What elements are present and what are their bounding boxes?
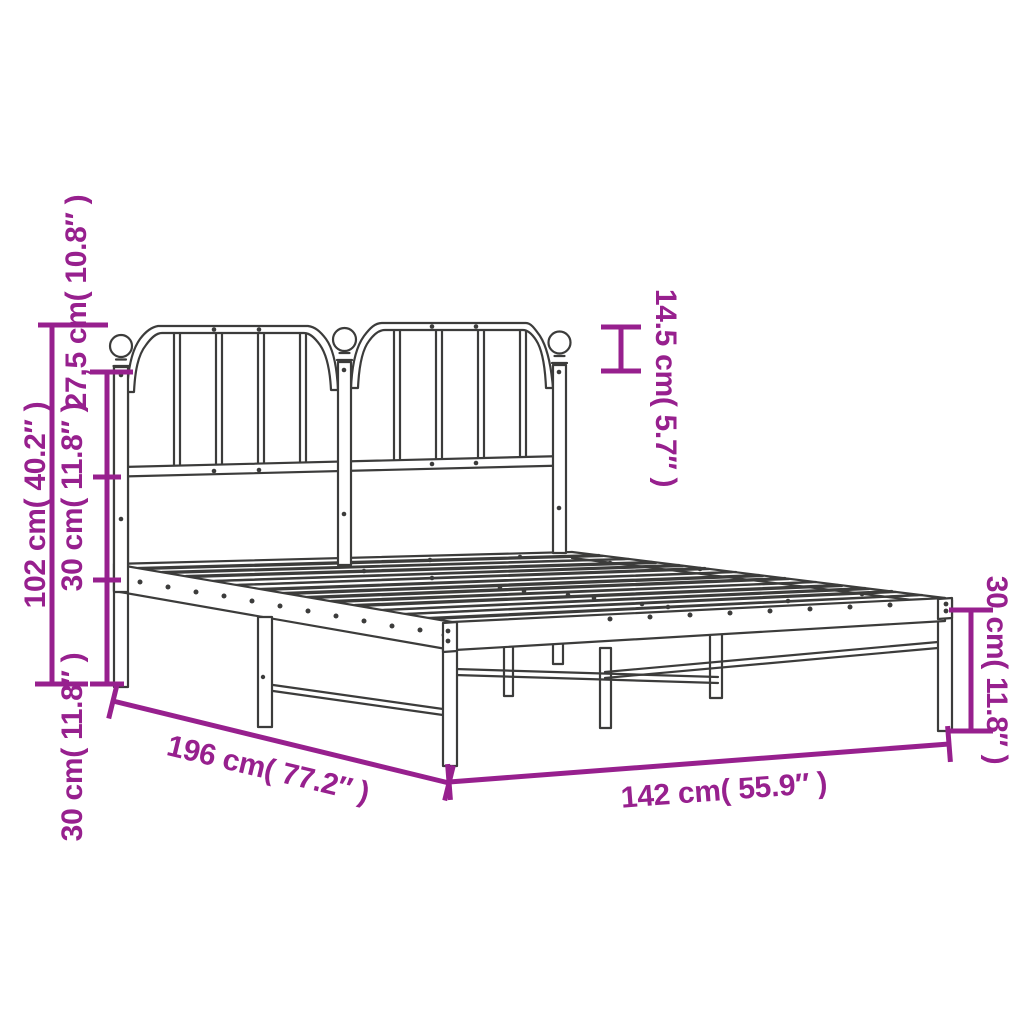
bed-frame-line-drawing (0, 0, 1024, 1024)
headboard-right-post (553, 365, 566, 553)
foot-near-bracket (443, 622, 457, 652)
dim-label-leg-height: 30 cm( 11.8″ ) (979, 576, 1013, 765)
dim-label-total-height: 102 cm( 40.2″ ) (19, 402, 53, 609)
center-foot-leg (600, 648, 611, 728)
side-rail (114, 564, 452, 650)
foot-near-leg (443, 650, 457, 766)
bed-frame-illustration (110, 323, 952, 766)
product-dimension-diagram: 102 cm( 40.2″ ) 27,5 cm( 10.8″ ) 30 cm( … (0, 0, 1024, 1024)
dim-label-headboard-upper: 27,5 cm( 10.8″ ) (60, 195, 94, 410)
near-mid-leg (258, 617, 272, 727)
finial-middle (333, 328, 356, 360)
dim-label-headboard-lower: 30 cm( 11.8″ ) (56, 653, 90, 842)
dim-label-finial-height: 14.5 cm( 5.7″ ) (648, 289, 682, 487)
headboard-middle-post (338, 362, 351, 565)
dim-label-headboard-middle: 30 cm( 11.8″ ) (56, 403, 90, 592)
finial-left (110, 335, 132, 366)
headboard (110, 323, 571, 592)
finial-right (549, 332, 571, 364)
